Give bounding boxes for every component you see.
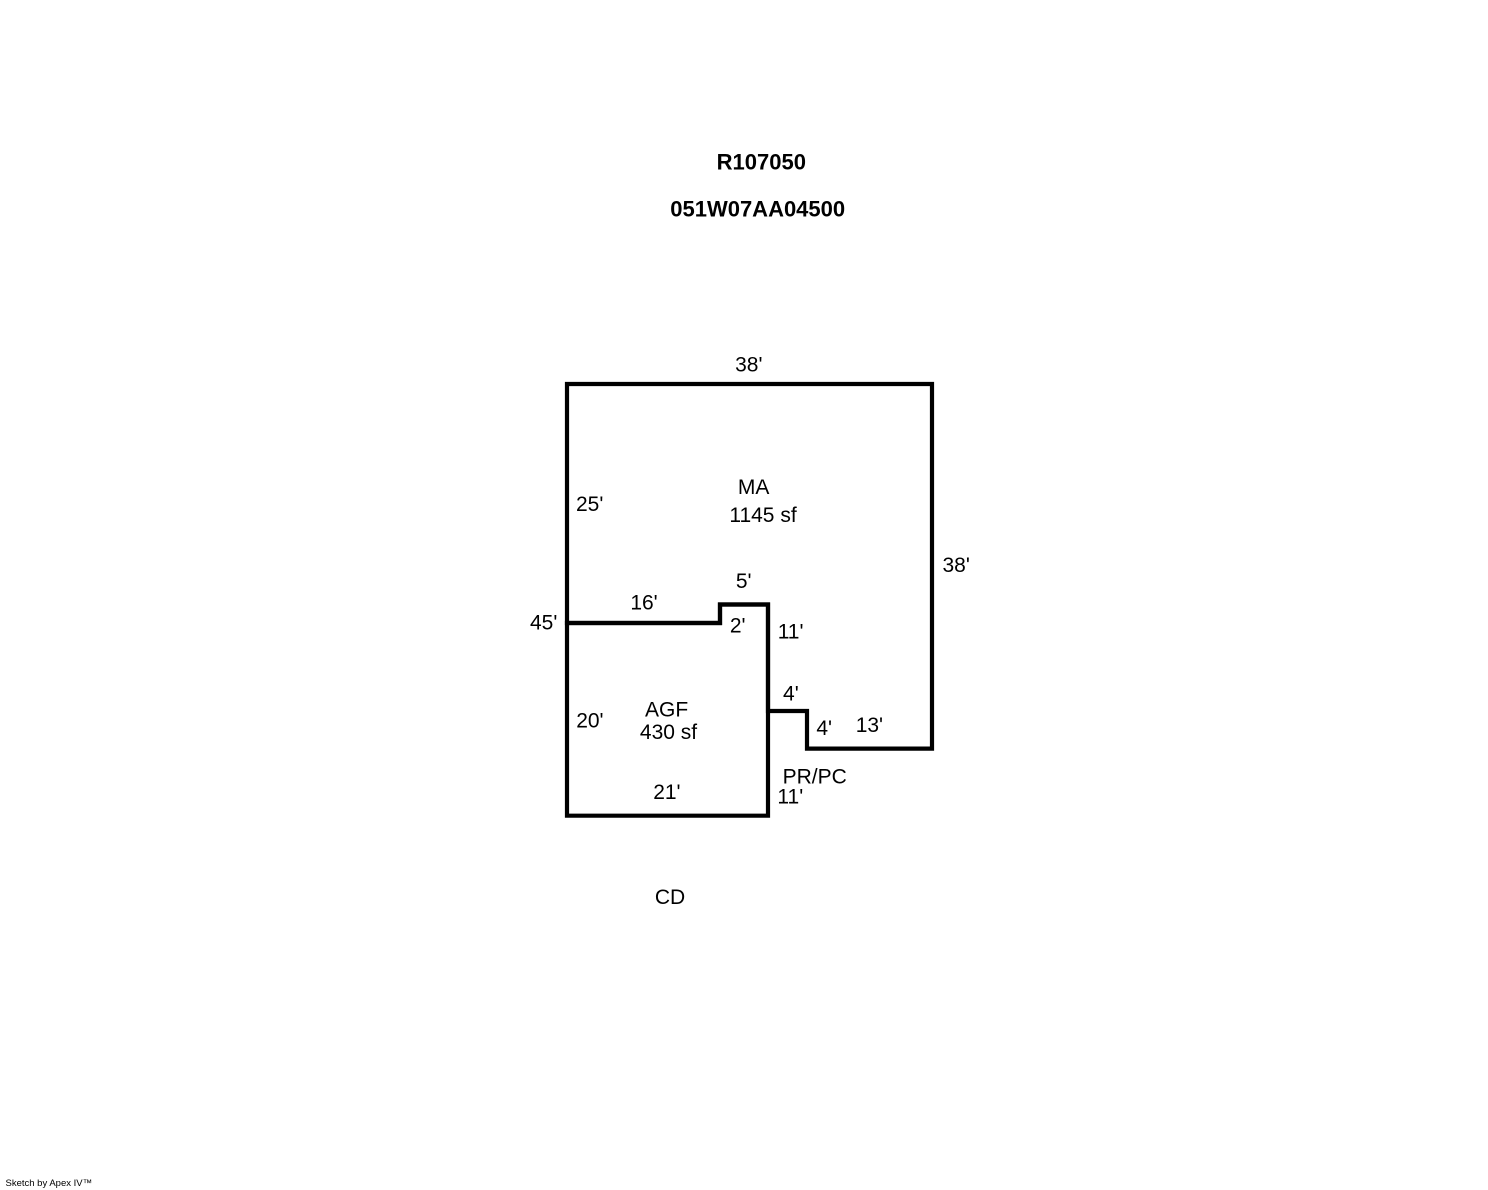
svg-text:430 sf: 430 sf: [640, 721, 697, 744]
svg-text:45': 45': [530, 611, 557, 634]
svg-text:2': 2': [730, 615, 746, 638]
svg-text:25': 25': [576, 493, 603, 516]
svg-text:1145 sf: 1145 sf: [729, 504, 796, 527]
svg-text:38': 38': [735, 353, 762, 376]
svg-text:21': 21': [653, 781, 680, 804]
svg-text:38': 38': [943, 554, 970, 577]
svg-text:16': 16': [630, 591, 657, 614]
svg-text:4': 4': [783, 682, 799, 705]
svg-text:AGF: AGF: [645, 699, 688, 722]
svg-text:20': 20': [576, 709, 603, 732]
svg-text:11': 11': [777, 785, 803, 808]
svg-text:Sketch by Apex IV™: Sketch by Apex IV™: [6, 1178, 93, 1189]
svg-text:11': 11': [778, 621, 804, 644]
svg-text:5': 5': [736, 570, 752, 593]
svg-text:051W07AA04500: 051W07AA04500: [670, 196, 845, 221]
svg-text:CD: CD: [655, 886, 685, 909]
svg-text:13': 13': [856, 714, 883, 737]
svg-text:4': 4': [816, 717, 832, 740]
svg-text:R107050: R107050: [717, 150, 806, 175]
svg-text:MA: MA: [738, 476, 770, 499]
